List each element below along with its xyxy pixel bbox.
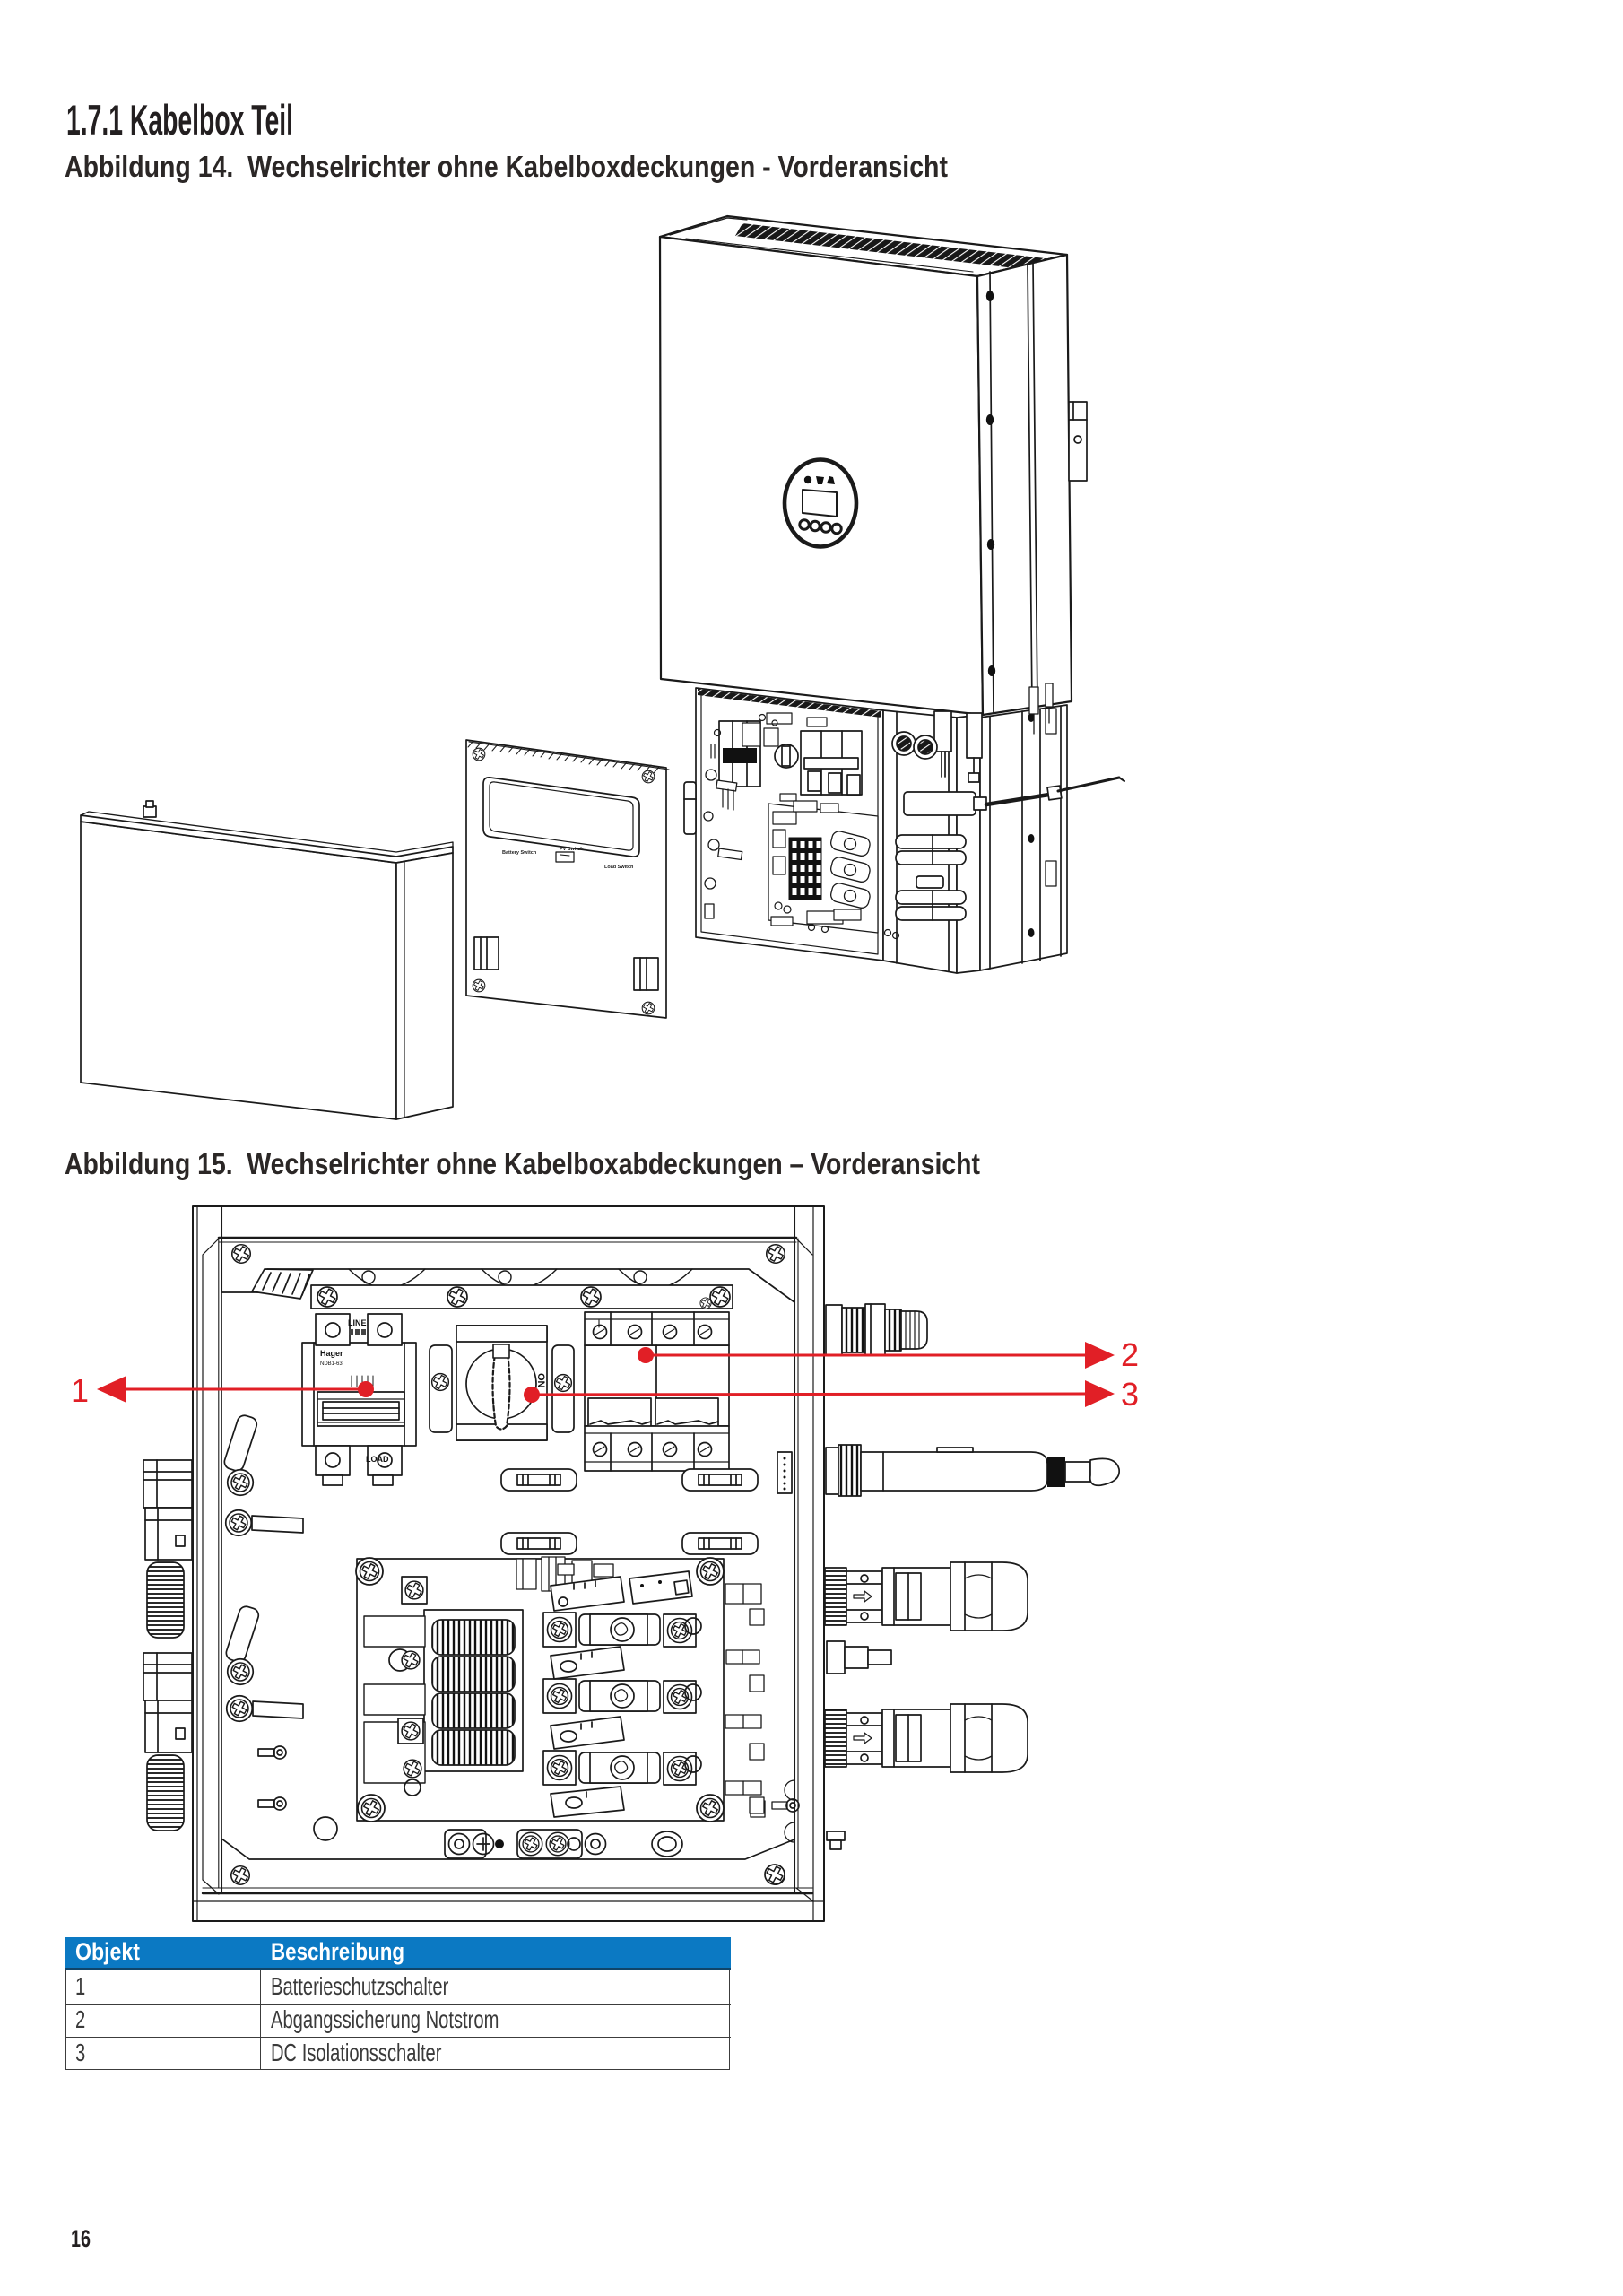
svg-text:NDB1-63: NDB1-63 — [320, 1361, 343, 1367]
svg-text:Battery Switch: Battery Switch — [502, 850, 537, 856]
svg-text:Hager: Hager — [320, 1349, 343, 1358]
svg-text:PV Switch: PV Switch — [560, 847, 584, 852]
svg-text:LINE: LINE — [348, 1318, 367, 1327]
svg-text:LOAD: LOAD — [366, 1455, 389, 1464]
svg-text:ON: ON — [535, 1373, 546, 1388]
svg-text:Load Switch: Load Switch — [604, 865, 634, 870]
